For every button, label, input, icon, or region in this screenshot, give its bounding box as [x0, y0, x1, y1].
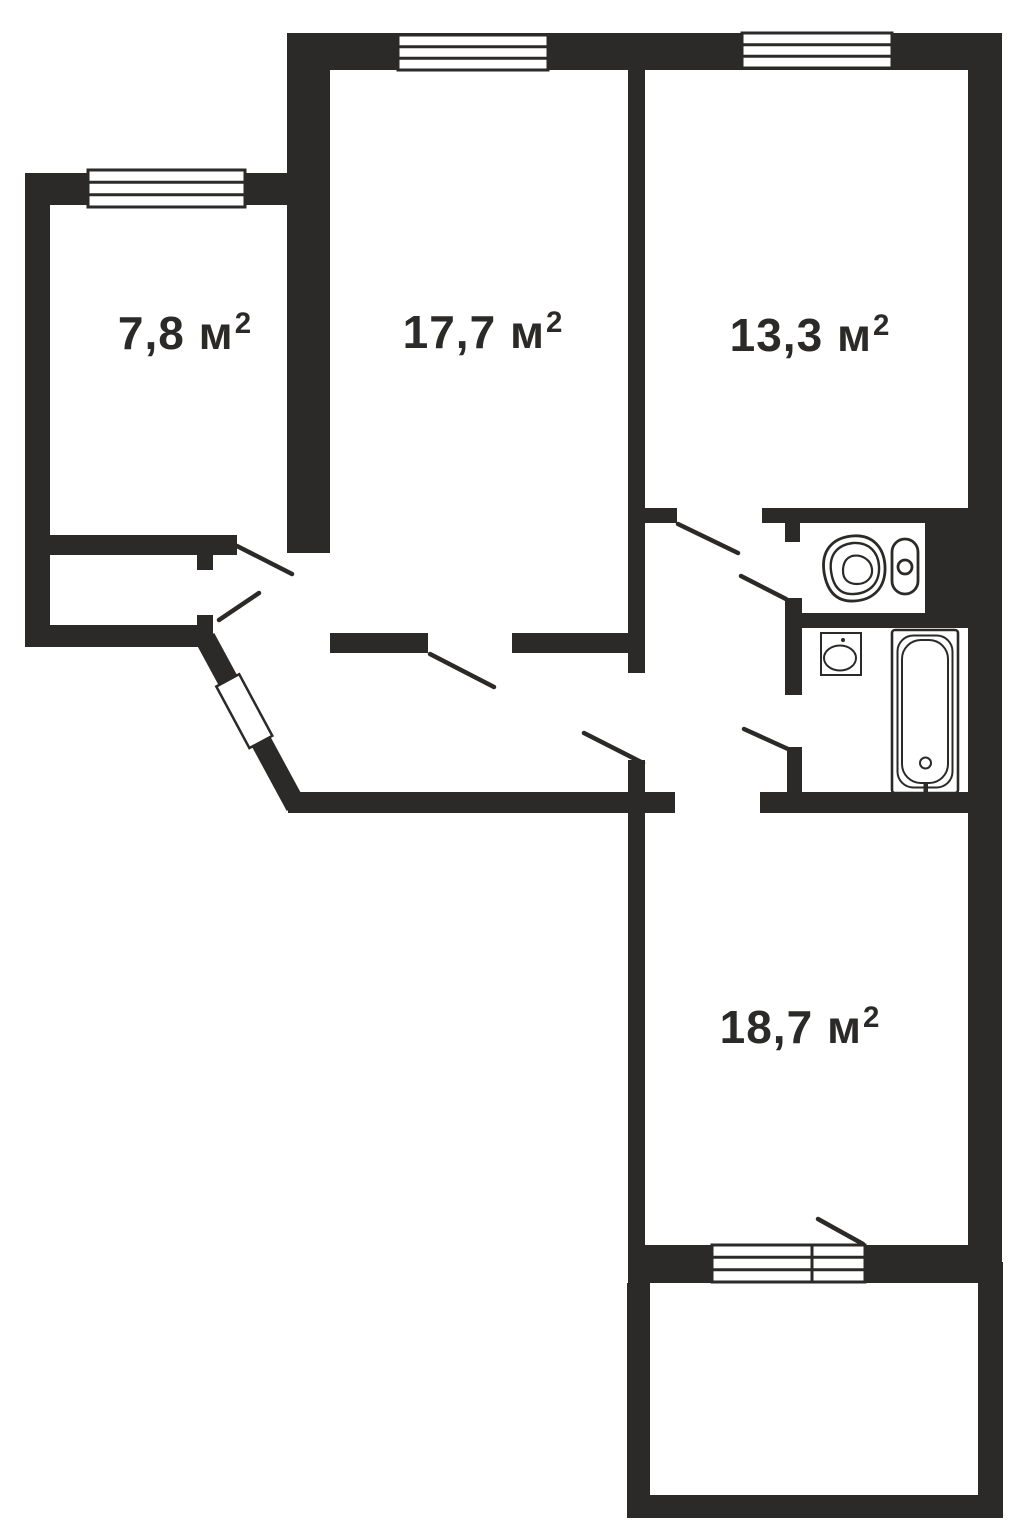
room-area-text: 18,7 м	[720, 1001, 862, 1053]
sink-basin	[824, 646, 856, 671]
wall-room78-bottom	[25, 535, 237, 555]
room-label-7-8: 7,8 м2	[118, 306, 252, 360]
wall-divider-middle-lower	[628, 760, 645, 1283]
door-swing-wc	[741, 576, 786, 599]
room-area-text: 17,7 м	[403, 306, 545, 358]
wall-wc-bath	[787, 613, 967, 628]
wall-wc-left-lower	[785, 598, 802, 695]
entrance-door	[216, 674, 272, 748]
door-swing-room177	[430, 654, 494, 687]
wall-room133-bottom-stub	[645, 508, 677, 523]
bathtub-drain	[920, 758, 931, 769]
door-swing-room133	[678, 524, 738, 553]
wall-top-main	[287, 33, 1002, 70]
sink-icon	[821, 633, 861, 675]
door-swing-room78	[237, 546, 292, 574]
door-swing-closet	[219, 593, 259, 620]
wall-jamb-1	[197, 555, 213, 570]
floor-plan-drawing	[0, 0, 1024, 1533]
wall-corridor-bottom-right	[760, 792, 1002, 813]
wall-left-outer	[25, 173, 50, 647]
room-label-13-3: 13,3 м2	[730, 308, 891, 362]
room-area-sup: 2	[546, 306, 563, 339]
walls-layer	[25, 33, 1003, 1518]
wall-balcony-bottom	[627, 1495, 1003, 1518]
sink-tap	[841, 638, 845, 642]
wall-wc-left-upper	[785, 523, 800, 542]
room-area-sup: 2	[873, 309, 890, 342]
toilet-bowl-center	[843, 556, 872, 584]
room-label-18-7: 18,7 м2	[720, 1000, 881, 1054]
balcony-window-door-unit	[712, 1245, 865, 1282]
room-area-sup: 2	[235, 307, 252, 340]
wall-divider-left	[287, 33, 330, 553]
wall-corridor-bottom-left	[288, 792, 675, 813]
wall-room177-bottom-left	[330, 633, 428, 653]
toilet-icon	[824, 536, 918, 601]
floor-plan: 7,8 м2 17,7 м2 13,3 м2 18,7 м2	[0, 0, 1024, 1533]
door-swing-balcony	[818, 1219, 863, 1244]
wall-divider-middle-upper	[628, 70, 645, 673]
door-swing-bathroom	[744, 729, 788, 749]
wall-balcony-right	[978, 1262, 1003, 1518]
room-label-17-7: 17,7 м2	[403, 305, 564, 359]
room-area-sup: 2	[863, 1001, 880, 1034]
toilet-flush-button	[898, 560, 912, 574]
room-area-text: 13,3 м	[730, 309, 872, 361]
window-room-top-left	[88, 170, 245, 207]
wall-balcony-left	[627, 1283, 650, 1518]
bathtub-icon	[892, 630, 958, 799]
wall-room177-bottom-right	[512, 633, 645, 653]
door-swings-layer	[219, 524, 863, 1244]
window-room-top-middle	[398, 35, 548, 70]
room-area-text: 7,8 м	[118, 307, 234, 359]
wall-right-outer	[968, 33, 1002, 1262]
window-room-top-right	[742, 33, 892, 68]
bathtub-overflow-mark	[924, 784, 929, 799]
door-swing-vestibule	[584, 733, 643, 763]
wall-closet-bottom	[25, 625, 197, 647]
